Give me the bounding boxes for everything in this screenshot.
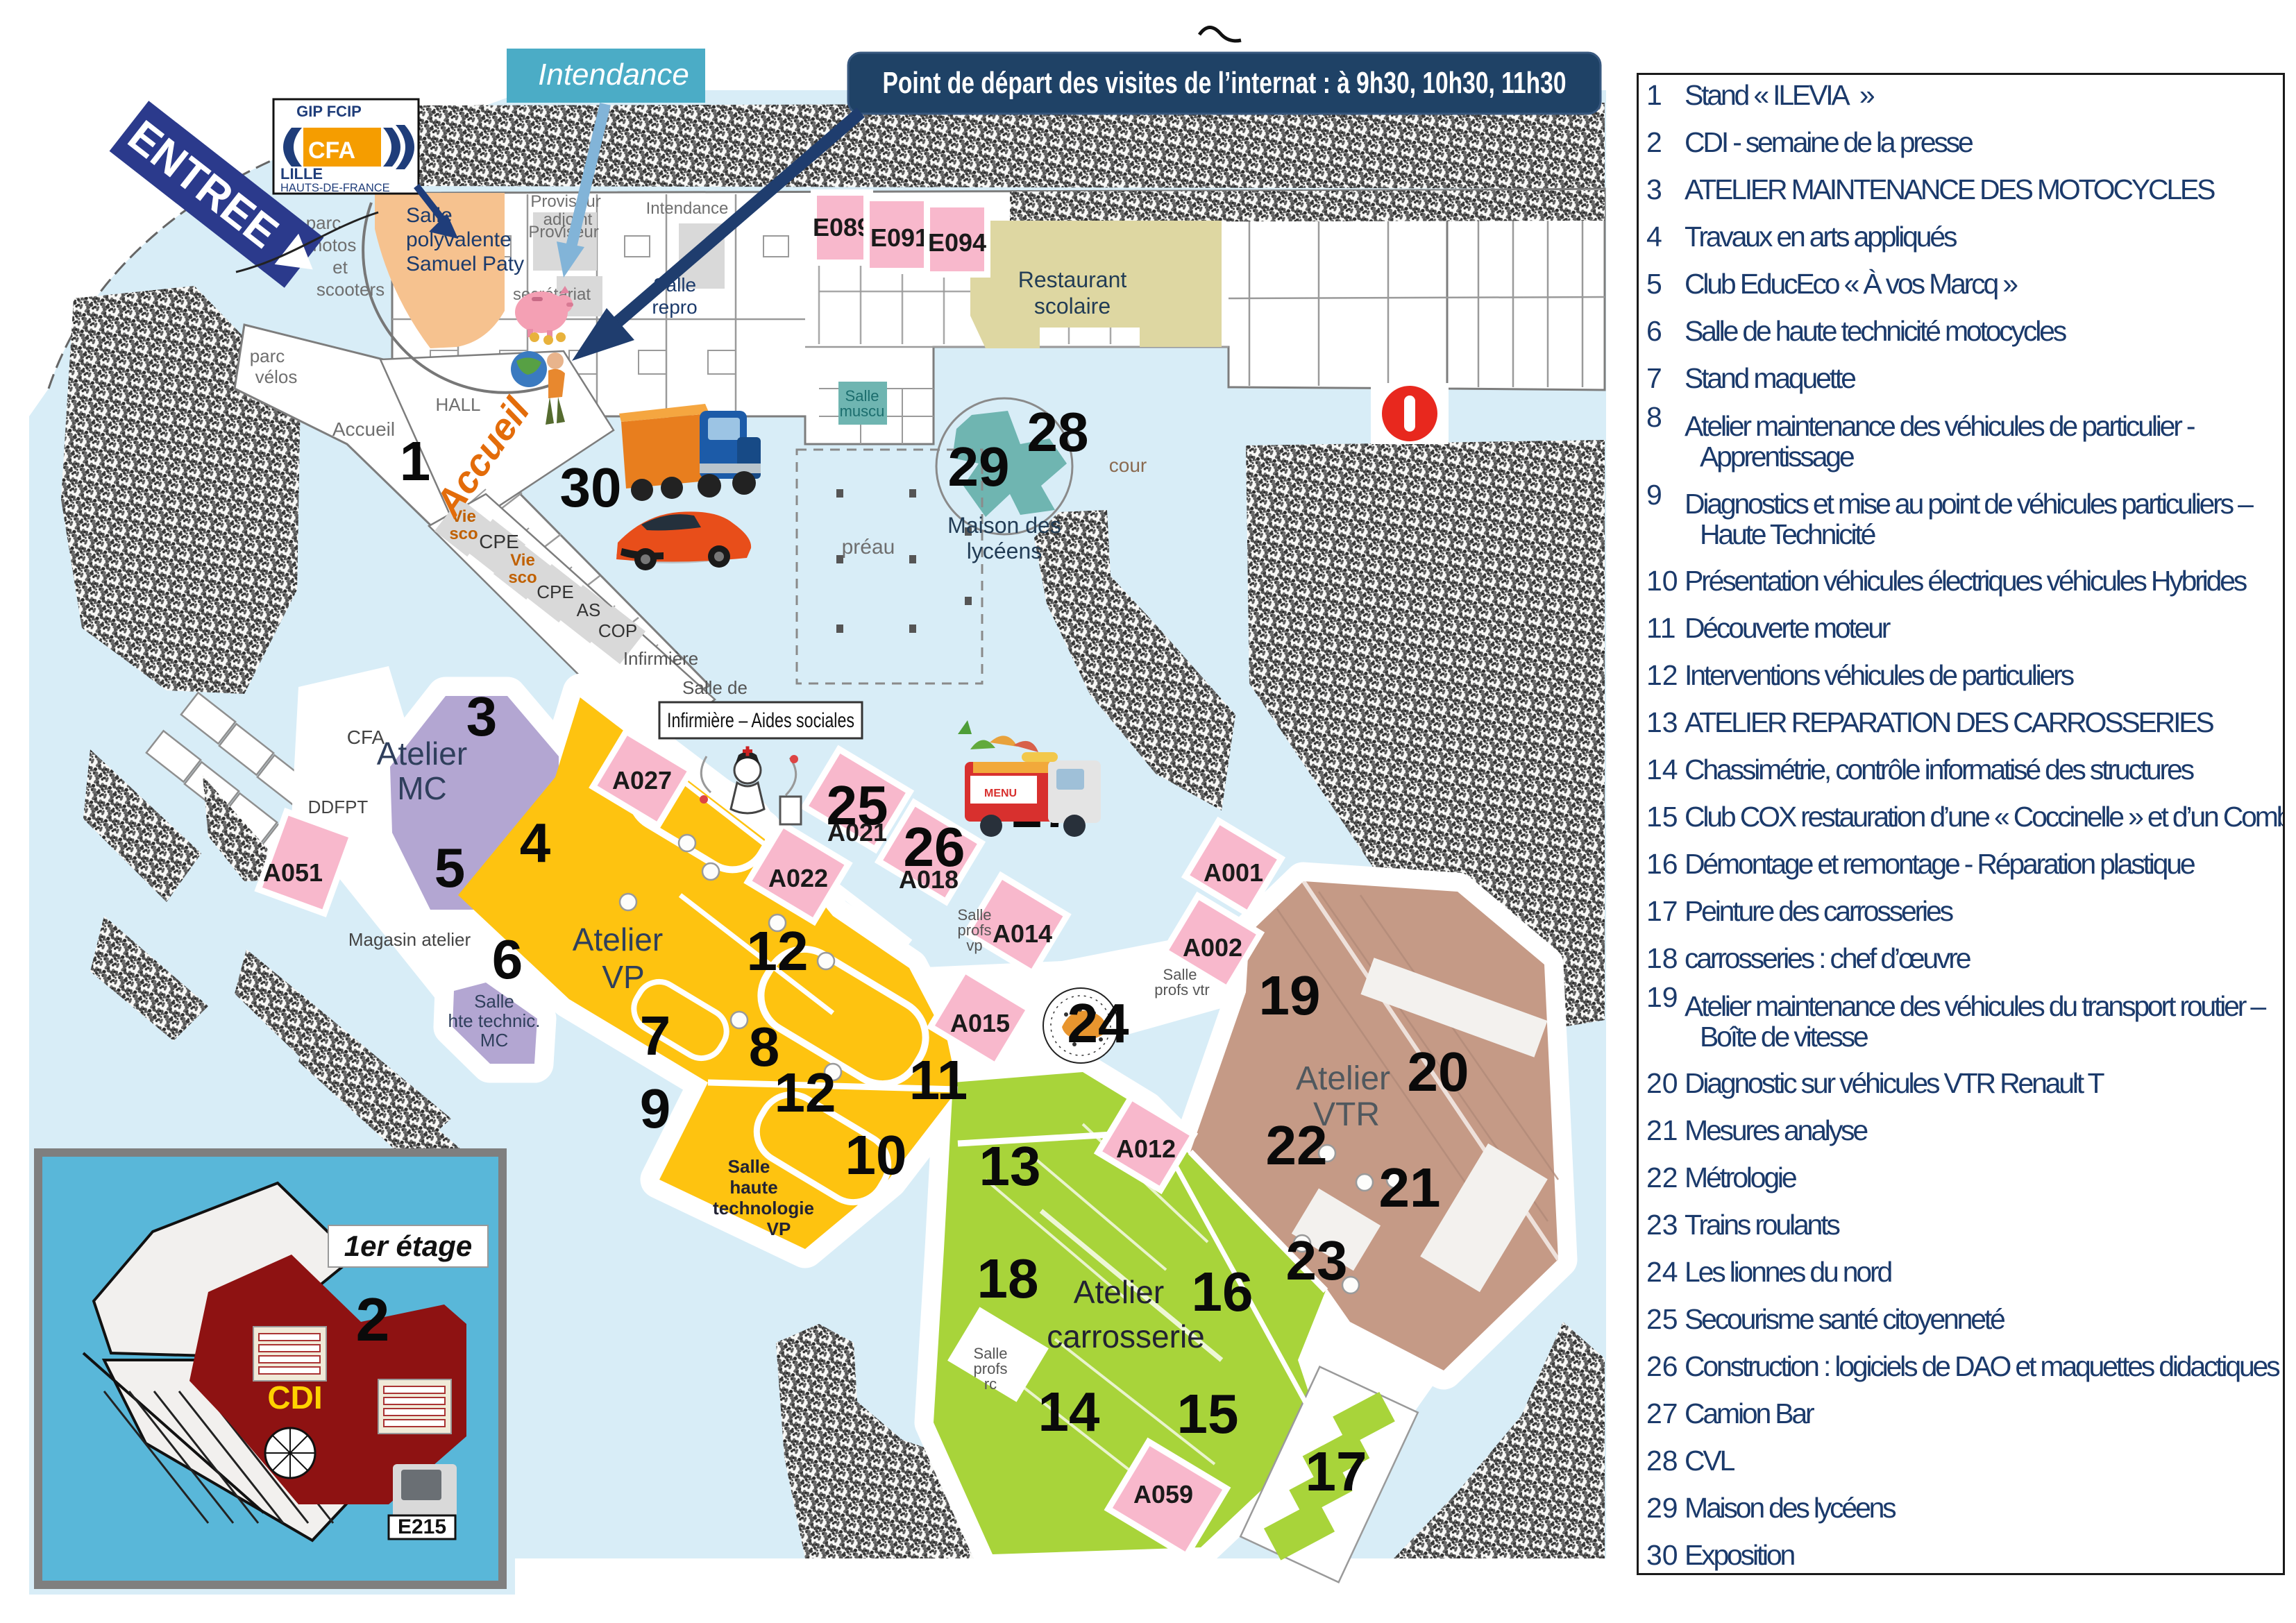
svg-text:E215: E215 [398,1515,446,1538]
svg-text:Accueil: Accueil [427,390,539,525]
svg-text:CFA: CFA [308,137,355,164]
svg-text:HAUTS-DE-FRANCE: HAUTS-DE-FRANCE [280,182,390,194]
svg-text:1er étage: 1er étage [344,1230,472,1262]
svg-text:MENU: MENU [984,788,1017,799]
svg-text:GIP FCIP: GIP FCIP [296,103,362,120]
svg-text:Infirmière – Aides sociales: Infirmière – Aides sociales [667,709,854,732]
svg-text:Point de départ des visites de: Point de départ des visites de l’interna… [883,66,1567,100]
svg-text:LILLE: LILLE [280,165,323,182]
svg-text:CDI: CDI [267,1379,322,1416]
svg-text:Intendance: Intendance [538,58,689,92]
svg-text:ENTREE: ENTREE [119,110,288,257]
svg-text:2: 2 [356,1285,390,1354]
